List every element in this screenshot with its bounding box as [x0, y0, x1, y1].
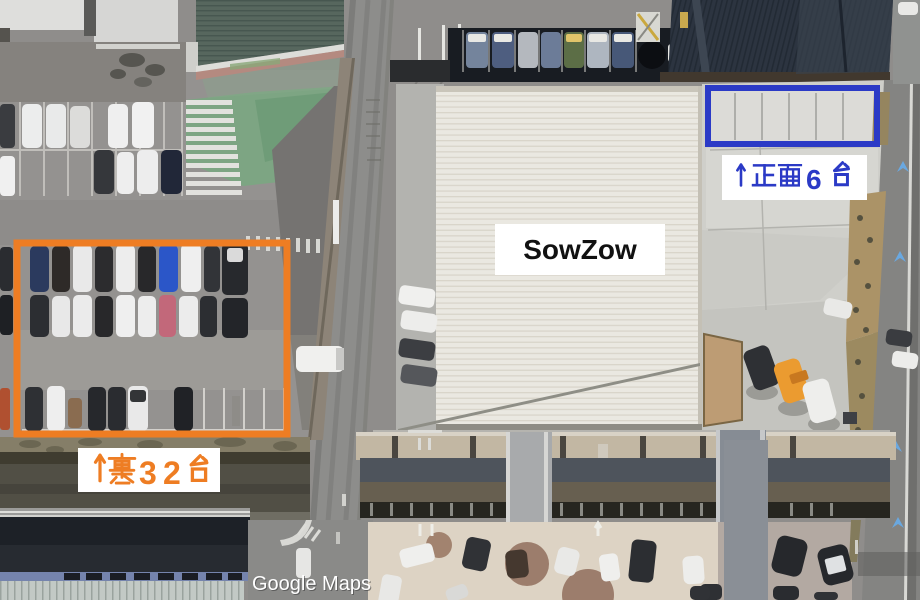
svg-text:SowZow: SowZow	[523, 234, 637, 265]
svg-text:Google Maps: Google Maps	[252, 573, 371, 595]
svg-text:3: 3	[139, 455, 157, 491]
svg-text:6: 6	[806, 164, 822, 195]
svg-text:2: 2	[163, 455, 181, 491]
